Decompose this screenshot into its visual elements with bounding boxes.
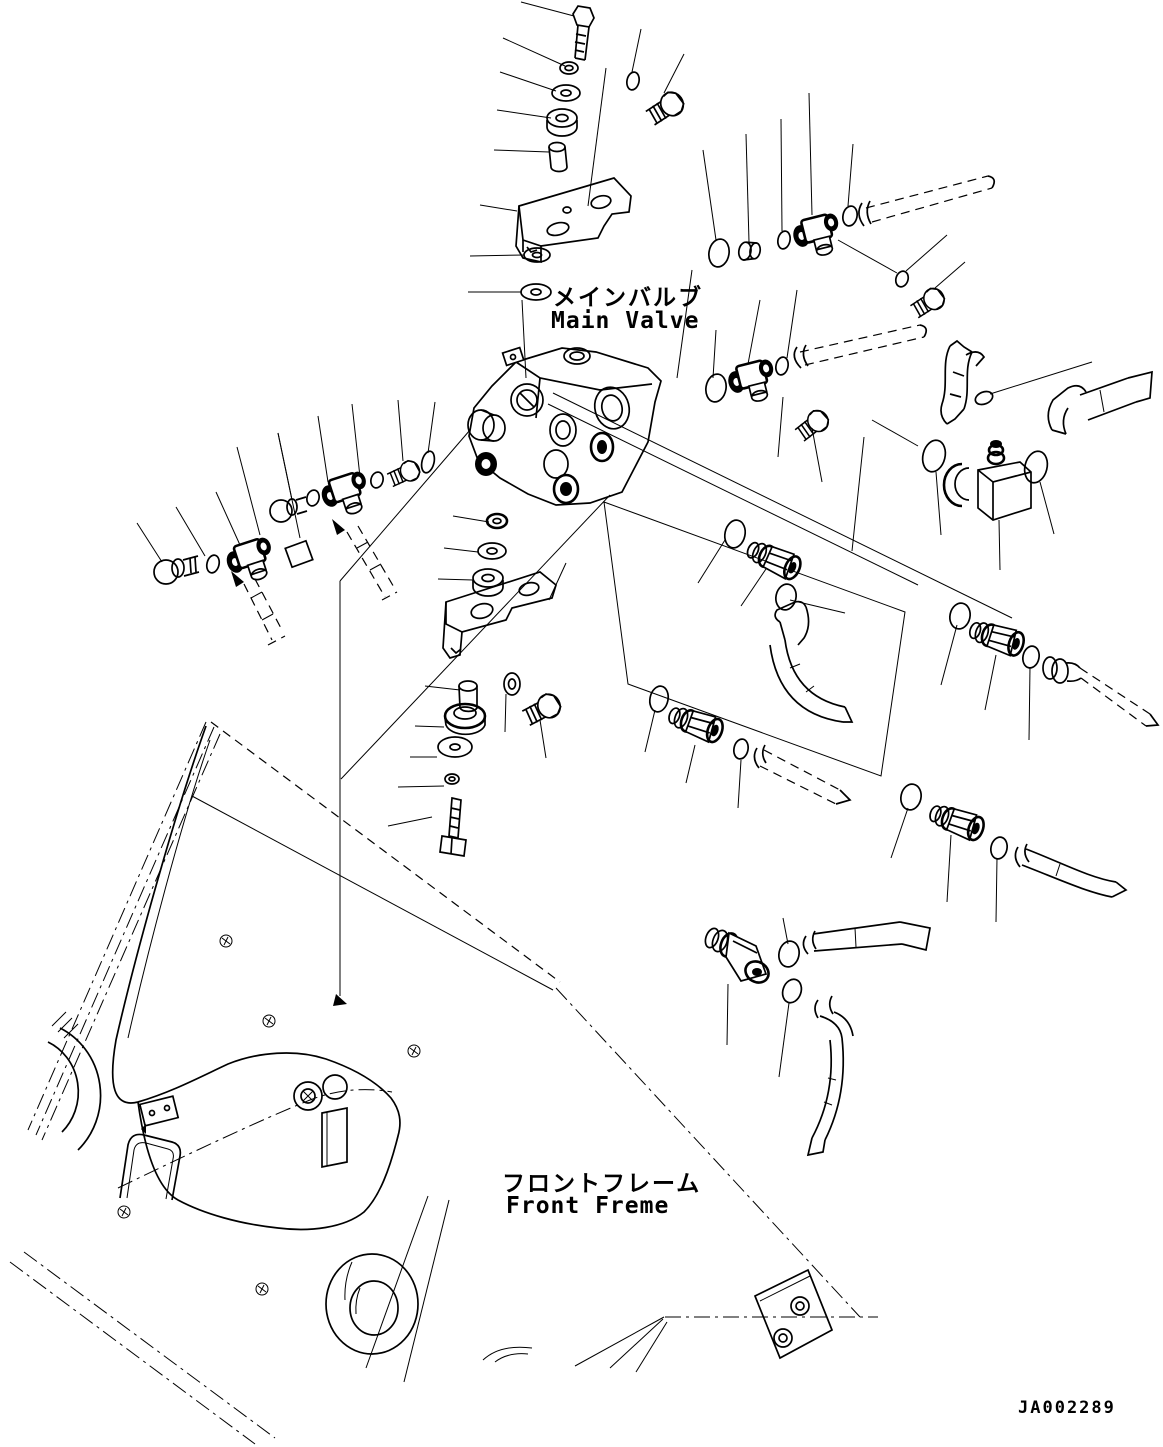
o-ring: [205, 554, 221, 574]
front-frame: [10, 722, 878, 1444]
cushion-nut: [445, 704, 485, 734]
thick-washer-1: [547, 109, 577, 136]
hose-connector: [743, 536, 804, 582]
hex-bolt-top-right: [644, 88, 688, 128]
o-ring-small: [774, 356, 789, 376]
drawing-number: JA002289: [1018, 1398, 1116, 1418]
screw-mark: [256, 1283, 268, 1295]
hose-connector: [966, 617, 1026, 659]
axle-arc: [48, 1012, 101, 1150]
hex-bolt-top: [573, 6, 594, 60]
connector-c3: [703, 918, 930, 1155]
hose-connector: [926, 800, 987, 843]
o-ring-small: [989, 836, 1009, 861]
lower-bracket-assembly: [388, 514, 566, 856]
o-ring: [841, 205, 859, 227]
o-ring: [919, 438, 948, 474]
connector-c2: [891, 782, 1126, 922]
lock-nut: [560, 62, 578, 74]
elbow-fitting-group: [919, 341, 1152, 570]
connector-c1: [941, 601, 1158, 740]
main-valve-label-ja: メインバルブ: [553, 278, 703, 312]
screw-mark: [118, 1206, 130, 1218]
left-tee-cluster-lower: [137, 433, 313, 645]
bushing-plug: [737, 240, 761, 262]
o-ring: [779, 977, 804, 1006]
parts-diagram-page: メインバルブ Main Valve フロントフレーム Front Freme J…: [0, 0, 1163, 1447]
o-ring-small: [776, 230, 791, 250]
hex-plug: [793, 406, 833, 444]
hydraulic-hose-right: [1048, 372, 1152, 434]
screw-mark: [220, 935, 232, 947]
tee-fitting: [790, 212, 845, 261]
tee-fitting: [223, 536, 280, 588]
o-ring: [774, 582, 799, 612]
o-ring: [948, 601, 973, 631]
o-ring: [647, 684, 670, 713]
screw-mark: [263, 1015, 275, 1027]
tee-fitting: [318, 470, 375, 522]
frame-bracket-plate: [140, 1096, 178, 1134]
o-ring-small: [732, 738, 750, 760]
right-fitting-cluster-upper: [703, 93, 994, 321]
elbow-connector: [703, 927, 772, 987]
o-ring: [722, 518, 747, 550]
lock-nut-2: [487, 514, 507, 528]
hex-bolt-bottom: [440, 798, 466, 856]
dome-plug: [270, 497, 307, 522]
small-ring: [445, 774, 459, 784]
o-ring-small: [1021, 645, 1041, 670]
frame-rib: [322, 1108, 347, 1167]
o-ring: [777, 939, 802, 969]
right-fitting-cluster-middle: [704, 290, 927, 482]
hydraulic-hose-curved: [1015, 844, 1126, 897]
hydraulic-hose-dashed: [859, 176, 994, 226]
flange: [285, 541, 313, 567]
plain-washer-3: [521, 284, 551, 300]
main-valve-label-en: Main Valve: [551, 308, 699, 334]
upper-bracket-assembly: [468, 2, 688, 300]
connector-c4: [645, 684, 850, 808]
o-ring-top: [625, 71, 640, 91]
left-tee-cluster-upper: [270, 400, 436, 600]
hydraulic-hose-down: [808, 996, 853, 1155]
front-frame-label-en: Front Freme: [506, 1193, 669, 1219]
bolt-boss: [294, 1075, 347, 1110]
plain-washer-1: [552, 85, 580, 101]
hex-bolt-lower: [520, 690, 564, 729]
hex-plug: [386, 458, 423, 490]
screw-mark: [408, 1045, 420, 1057]
elbow-block-fitting: [944, 440, 1031, 520]
o-ring: [420, 450, 437, 474]
hydraulic-hose-curved: [770, 602, 852, 722]
o-ring-top: [973, 389, 994, 407]
spacer-collar-1: [549, 143, 567, 172]
o-ring-small: [369, 471, 385, 489]
mounting-plate: [755, 1270, 832, 1358]
hex-plug: [908, 285, 948, 321]
mounting-bracket-upper: [516, 178, 631, 262]
hydraulic-hose: [1043, 657, 1158, 726]
plain-washer-6: [438, 737, 472, 757]
connector-c0: [698, 518, 852, 722]
hydraulic-hose-wavy: [941, 341, 984, 424]
wheel-arch: [326, 1254, 418, 1354]
o-ring: [305, 489, 321, 507]
hydraulic-hose-dashed: [794, 325, 926, 368]
mounting-bracket-lower: [443, 572, 556, 658]
construction-lines: [333, 393, 1012, 1006]
plain-washer-4: [478, 543, 506, 559]
plain-washer-5: [504, 673, 520, 695]
tee-fitting: [725, 358, 780, 407]
o-ring: [707, 237, 732, 268]
hydraulic-hose-dashed: [754, 745, 850, 804]
hydraulic-hose: [803, 922, 930, 954]
o-ring: [704, 372, 729, 403]
exploded-parts-linework: [0, 0, 1163, 1447]
o-ring: [899, 782, 924, 812]
